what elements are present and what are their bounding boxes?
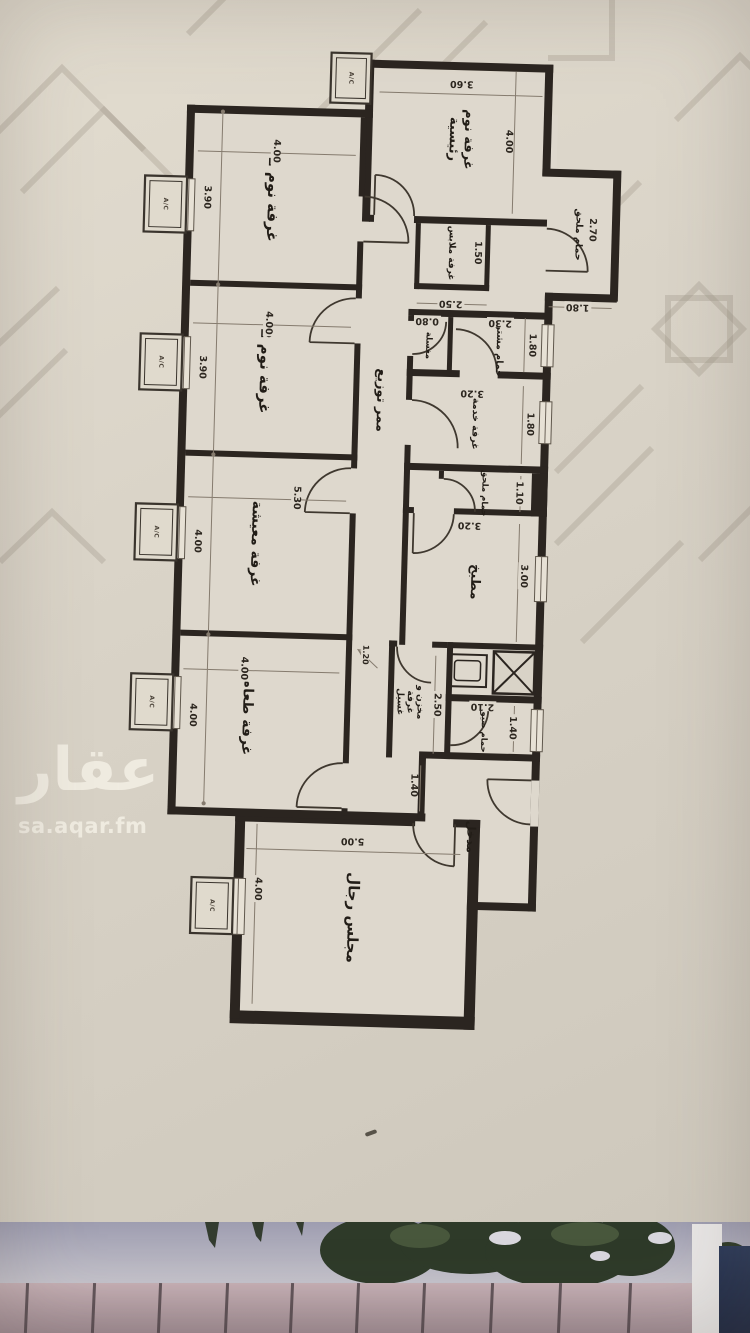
room-label-sink: مغسلة — [422, 332, 432, 360]
fence-seam — [24, 1283, 29, 1333]
watermark: عقار sa.aqar.fm — [18, 740, 159, 838]
room-label-master: غرفة نوم رئيسية — [445, 102, 476, 177]
fence-seam — [489, 1283, 494, 1333]
dim-bed1-width: 4.00 — [271, 137, 282, 165]
room-label-master-bath: حمام ملحق — [572, 208, 584, 261]
dim-master-width: 3.60 — [448, 78, 476, 89]
watermark-logo: عقار — [18, 740, 159, 800]
room-label-dining: غرفة طعام — [237, 678, 255, 756]
ac-unit-label: A/C — [162, 198, 169, 211]
fence-seam — [224, 1283, 229, 1333]
dim-living-width: 5.30 — [291, 484, 302, 512]
room-label-kitchen: مطبخ — [466, 564, 482, 600]
dim-bed2-width: 4.00 — [263, 309, 274, 337]
room-label-corridor: ممر توزيع — [372, 368, 388, 432]
dim-small-bath-depth: 1.10 — [513, 479, 524, 507]
dim-laundry-note: 1.20 — [360, 643, 369, 667]
room-label-living: غرفة معيشة — [246, 501, 264, 587]
photo-fence-wall — [0, 1283, 750, 1333]
dim-master-depth: 4.00 — [503, 128, 514, 156]
room-label-majlis: مجلس رجال — [343, 872, 362, 963]
room-label-laundry: مخزن و غرفة غسيل — [394, 680, 425, 725]
screenshot-root: { "watermark": { "logo": "عقار", "site":… — [0, 0, 750, 1333]
fence-seam — [421, 1283, 426, 1333]
entrance-opening — [530, 780, 539, 826]
dim-dining-depth: 4.00 — [187, 701, 198, 729]
floor-plan: غرفة نوم 1 غرفة نوم 2 غرفة معيشة غرفة طع… — [91, 45, 663, 1050]
dim-bed1-depth: 3.90 — [201, 183, 212, 211]
dim-kitchen-depth: 3.00 — [518, 562, 529, 590]
photo-white-pillar — [692, 1224, 722, 1333]
dim-bed2-depth: 3.90 — [196, 353, 207, 381]
dim-service-width: 3.20 — [458, 387, 486, 398]
dim-laundry-depth: 2.50 — [431, 691, 442, 719]
dim-sink-width: 0.80 — [413, 315, 441, 326]
dim-guest-bath-width: 2.10 — [469, 701, 497, 712]
fence-seam — [157, 1283, 162, 1333]
room-label-entrance: مدخل — [464, 820, 478, 853]
fence-seam — [289, 1283, 294, 1333]
dim-guest-bath-depth: 1.40 — [506, 714, 517, 742]
dim-living-depth: 4.00 — [192, 527, 203, 555]
dim-closet-depth: 1.50 — [472, 239, 483, 267]
ac-unit-label: A/C — [347, 72, 354, 85]
dim-shared-bath-width: 2.30 — [486, 317, 514, 328]
room-label-closet: غرفة ملابس — [445, 226, 457, 281]
dim-kitchen-width: 3.20 — [456, 519, 484, 530]
fence-seam — [91, 1283, 96, 1333]
room-label-bed2: غرفة نوم 2 — [255, 328, 274, 414]
bottom-photo-strip — [0, 1222, 750, 1333]
dim-dining-width: 4.00 — [238, 655, 249, 683]
fence-seam — [557, 1283, 562, 1333]
dim-master-bath-depth: 2.70 — [586, 216, 597, 244]
dim-majlis-width: 5.00 — [339, 835, 367, 846]
floor-plan-drawing — [91, 45, 663, 1050]
dim-majlis-depth: 4.00 — [252, 875, 263, 903]
dim-service-depth: 1.80 — [524, 410, 535, 438]
dim-closet-width: 2.50 — [437, 298, 465, 309]
room-label-service: غرفة خدمة — [468, 398, 480, 450]
watermark-site-url: sa.aqar.fm — [18, 814, 159, 838]
dim-shared-bath-depth: 1.80 — [526, 331, 537, 359]
photo-navy-object — [719, 1246, 750, 1333]
ac-unit-label: A/C — [148, 695, 155, 708]
room-label-bed1: غرفة نوم 1 — [263, 156, 282, 242]
fence-seam — [355, 1283, 360, 1333]
ac-unit-label: A/C — [153, 525, 160, 538]
shaft-x-icon — [493, 651, 535, 694]
ac-unit-label: A/C — [157, 355, 164, 368]
room-label-small-bath: حمام ملحق — [478, 470, 489, 517]
dim-master-bath-width: 1.80 — [564, 301, 592, 312]
ac-unit-label: A/C — [208, 899, 215, 912]
fence-seam — [627, 1283, 632, 1333]
dim-entrance-width: 1.40 — [408, 771, 419, 799]
